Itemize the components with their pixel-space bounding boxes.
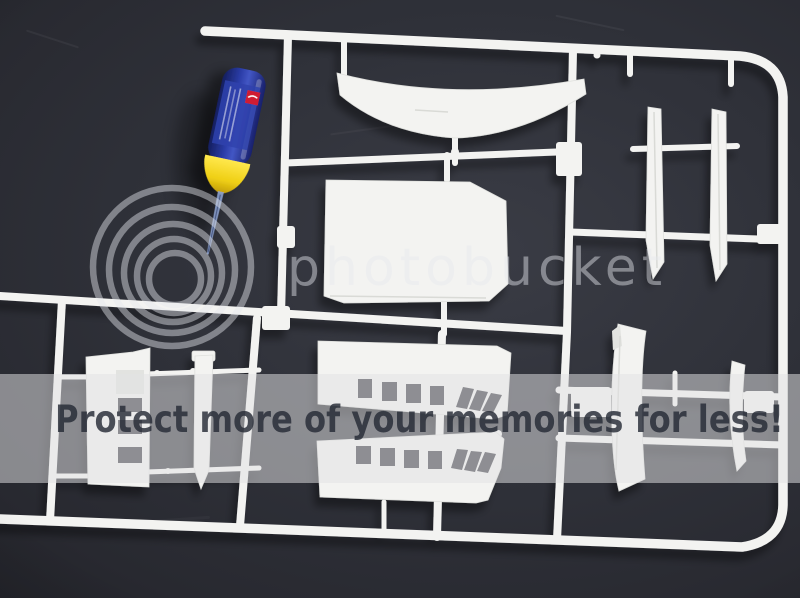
sprue — [0, 31, 783, 547]
superstructure-side-part-1 — [318, 341, 511, 419]
revell-logo — [245, 90, 260, 105]
scene-graphic — [0, 0, 800, 598]
runner-right-top-horizontal — [571, 232, 783, 240]
runner-plate — [571, 387, 611, 417]
runner-vertical-upper-left — [281, 35, 288, 316]
runner-tab — [757, 224, 781, 244]
gate-ball — [594, 52, 601, 59]
gate-pin — [154, 370, 160, 376]
photo-canvas: photobucket Protect more of your memorie… — [0, 0, 800, 598]
gate-ball — [451, 148, 459, 156]
runner-vertical-far-left — [50, 300, 62, 521]
mast-strip-part-2 — [710, 109, 727, 281]
curved-bow-part-2 — [730, 361, 746, 471]
crescent-deck-part — [337, 73, 586, 138]
runner-right-bottom-horizontal-2 — [559, 438, 783, 445]
runner-tab — [556, 142, 582, 176]
runner-junction-block — [262, 306, 290, 330]
runner-tab — [277, 226, 295, 248]
runner-vertical-right-divider — [557, 50, 573, 540]
runner-upper-mid-horizontal — [285, 152, 556, 163]
superstructure-side-part-2 — [317, 432, 504, 503]
runner-vertical-lower-left — [240, 318, 257, 526]
hull-panel-part — [324, 180, 508, 303]
cabin-wall-part — [86, 348, 150, 487]
runner-plate — [744, 391, 774, 413]
gate-pin — [165, 468, 171, 474]
mast-strip-part-1 — [646, 107, 664, 279]
curved-bow-part-1 — [612, 324, 646, 491]
